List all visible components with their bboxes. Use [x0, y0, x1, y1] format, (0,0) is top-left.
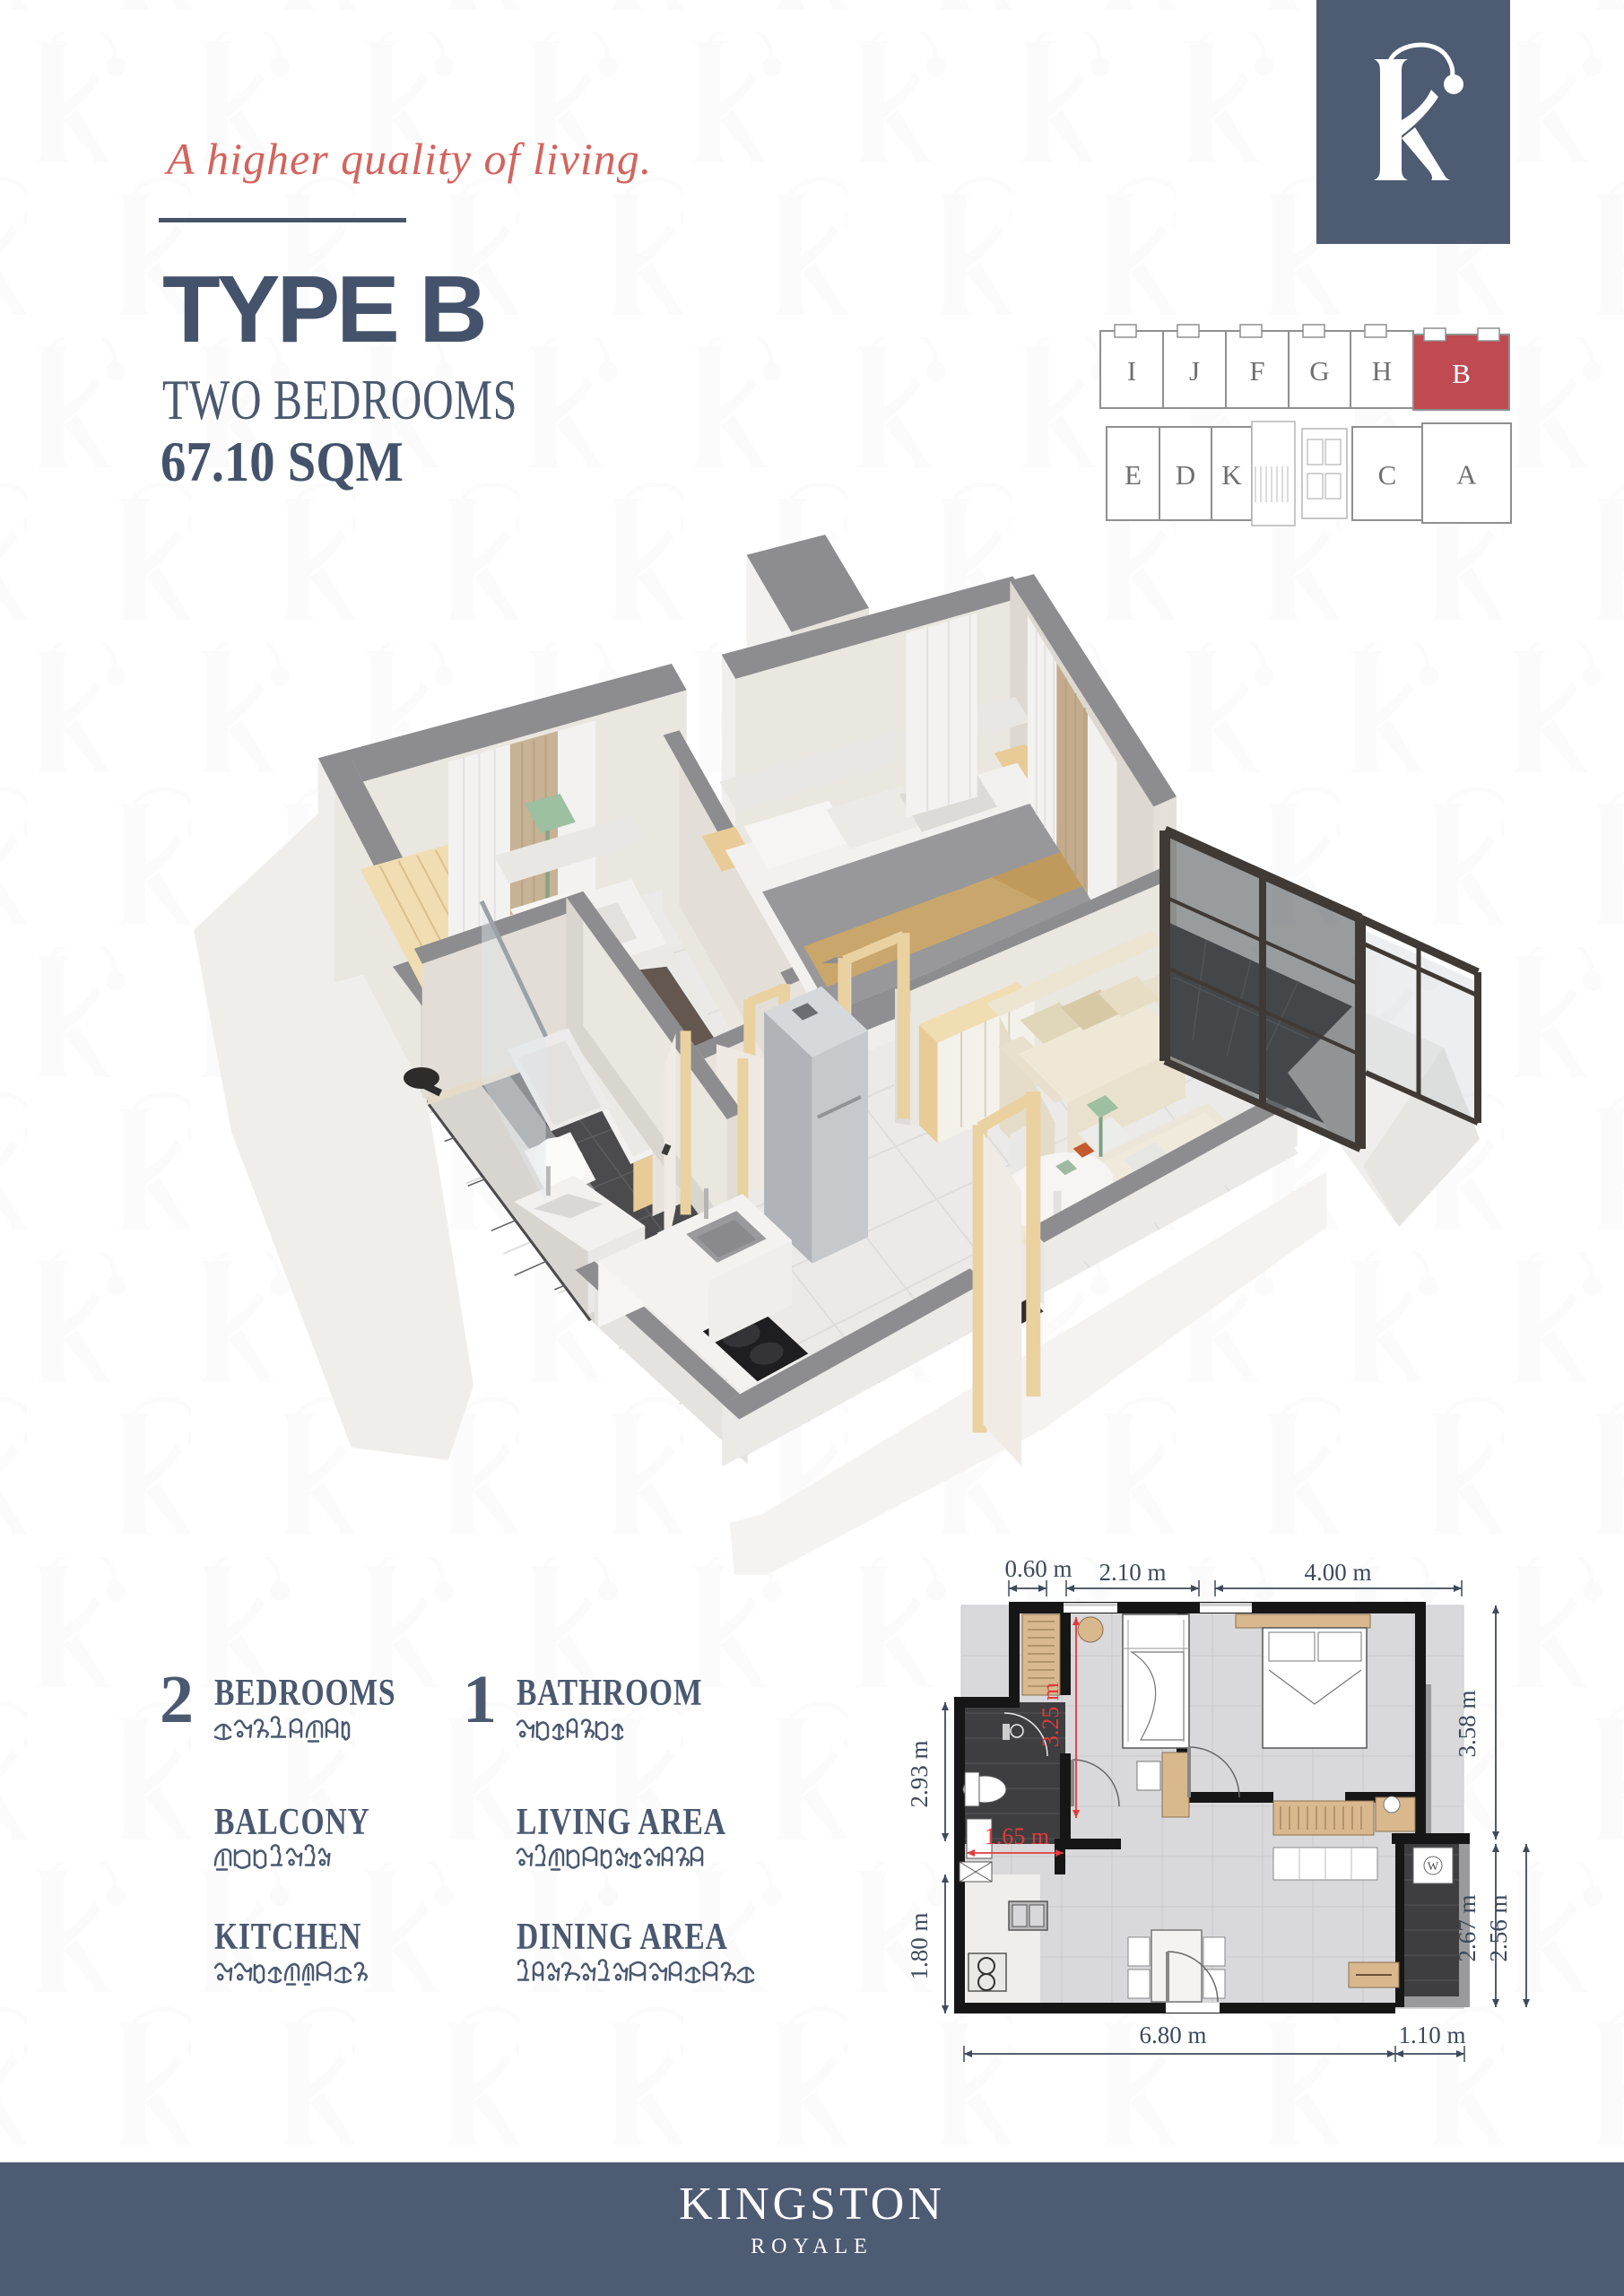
svg-text:4.00 m: 4.00 m: [1304, 1559, 1371, 1586]
svg-text:I: I: [1127, 355, 1136, 387]
svg-text:G: G: [1309, 355, 1329, 387]
svg-text:6.80 m: 6.80 m: [1139, 2022, 1206, 2048]
svg-text:0.60 m: 0.60 m: [1004, 1555, 1072, 1582]
svg-text:1.10 m: 1.10 m: [1398, 2022, 1465, 2048]
svg-text:K: K: [1221, 459, 1242, 491]
svg-text:W: W: [1428, 1859, 1439, 1873]
svg-text:3.25 m: 3.25 m: [1038, 1683, 1064, 1747]
svg-text:2.56 m: 2.56 m: [1485, 1894, 1512, 1961]
svg-text:2.93 m: 2.93 m: [906, 1740, 933, 1807]
svg-text:B: B: [1452, 358, 1471, 389]
svg-text:F: F: [1249, 355, 1264, 387]
svg-text:2.67 m: 2.67 m: [1454, 1894, 1481, 1961]
svg-text:J: J: [1189, 355, 1200, 387]
svg-text:1.80 m: 1.80 m: [906, 1912, 933, 1979]
svg-text:3.58 m: 3.58 m: [1454, 1690, 1481, 1757]
svg-text:D: D: [1176, 459, 1195, 491]
svg-text:A: A: [1456, 459, 1477, 491]
svg-text:H: H: [1372, 355, 1392, 387]
svg-text:C: C: [1378, 459, 1397, 491]
svg-text:2.10 m: 2.10 m: [1099, 1559, 1166, 1586]
svg-text:1.65 m: 1.65 m: [985, 1823, 1049, 1849]
svg-text:E: E: [1125, 459, 1142, 491]
